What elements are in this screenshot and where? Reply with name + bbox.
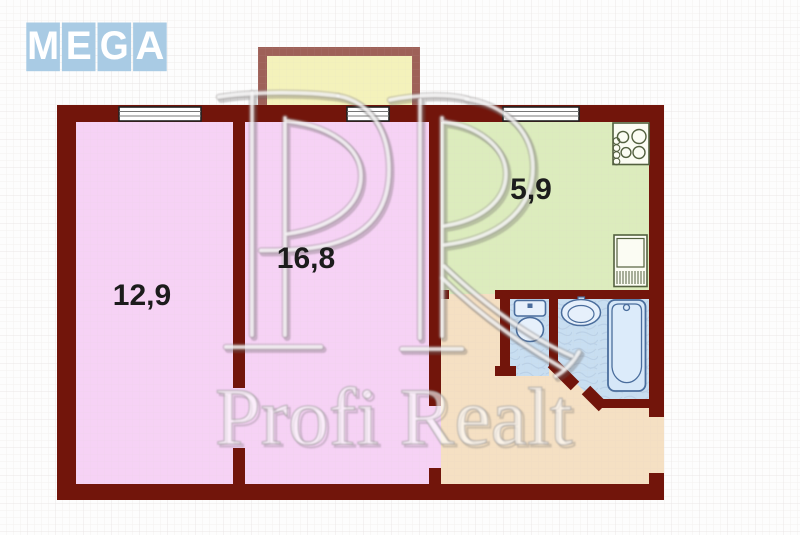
svg-text:A: A bbox=[135, 24, 164, 68]
svg-text:G: G bbox=[100, 24, 129, 68]
svg-text:16,8: 16,8 bbox=[277, 242, 335, 275]
svg-text:5,9: 5,9 bbox=[510, 173, 552, 206]
svg-text:12,9: 12,9 bbox=[113, 279, 171, 312]
svg-text:M: M bbox=[27, 24, 59, 68]
svg-text:E: E bbox=[66, 24, 92, 68]
svg-text:Profi Realt: Profi Realt bbox=[215, 371, 573, 462]
